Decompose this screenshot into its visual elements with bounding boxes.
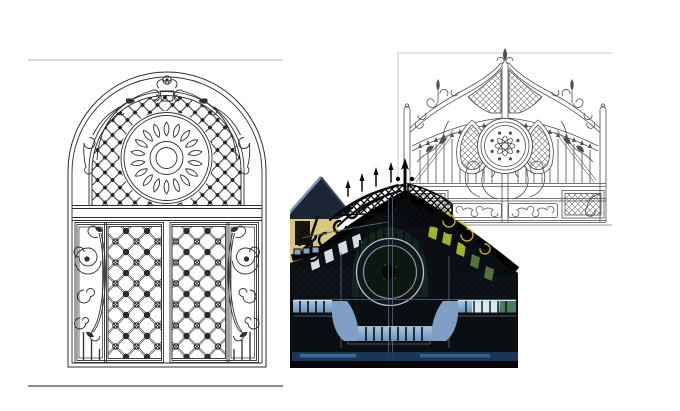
gate-photo xyxy=(290,158,522,370)
left-drawing-ink xyxy=(68,72,266,367)
crest-darts xyxy=(346,158,410,188)
door-trellis-panel xyxy=(108,227,162,359)
crest-mesh-panel xyxy=(468,70,501,113)
center-ring xyxy=(357,239,424,306)
bottom-rule xyxy=(28,385,283,387)
gate-design-collage xyxy=(0,0,680,411)
door-leaf xyxy=(74,223,164,363)
left-gate-drawing xyxy=(55,58,285,378)
